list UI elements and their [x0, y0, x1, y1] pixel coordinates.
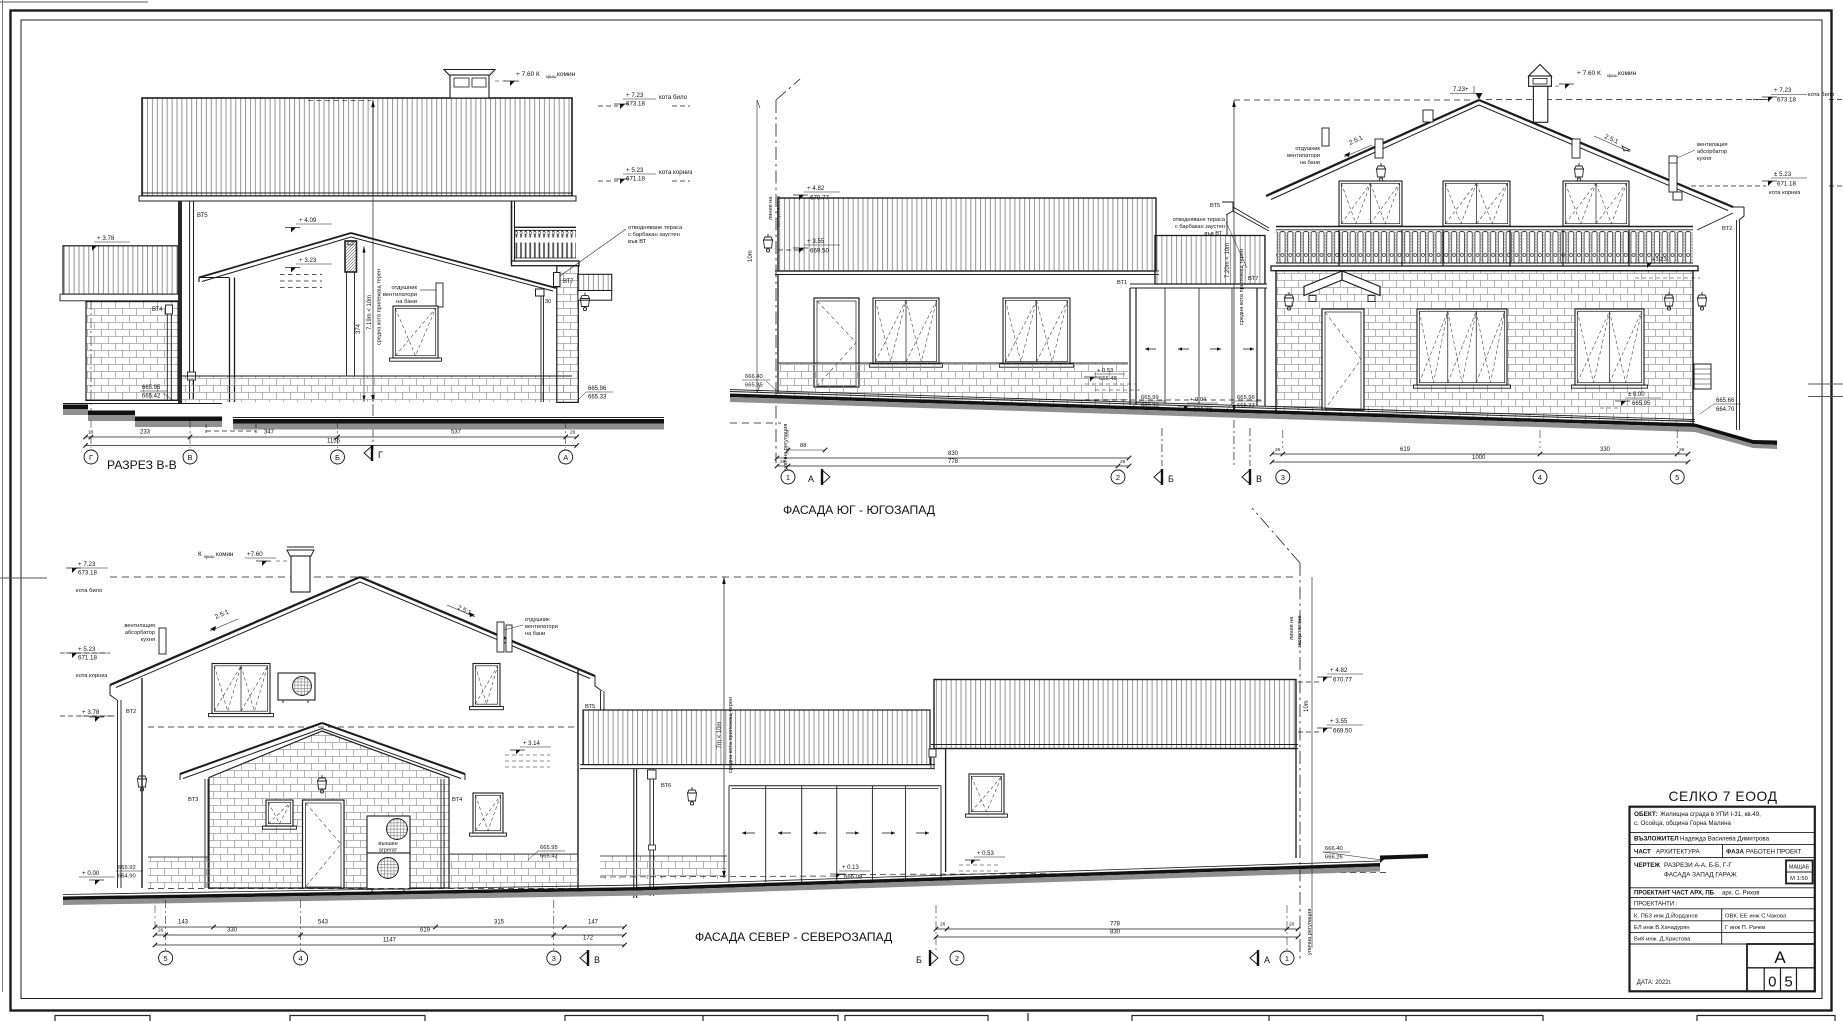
svg-text:комин: комин [557, 71, 576, 78]
svg-text:374: 374 [356, 323, 362, 334]
svg-text:7.20m < 10m: 7.20m < 10m [1225, 243, 1231, 278]
svg-text:кухня: кухня [1697, 156, 1711, 162]
svg-text:26: 26 [940, 922, 946, 928]
svg-text:РАЗРЕЗИ А-А, Б-Б, Г-Г: РАЗРЕЗИ А-А, Б-Б, Г-Г [1664, 862, 1732, 869]
svg-text:вентилатори: вентилатори [1287, 153, 1320, 159]
svg-text:+ 4.82: + 4.82 [807, 185, 825, 192]
svg-text:315: 315 [494, 920, 505, 926]
svg-text:средна кота прилежащ терен: средна кота прилежащ терен [1239, 249, 1245, 325]
svg-text:А: А [1774, 948, 1786, 967]
svg-text:ФАСАДА ЮГ - ЮГОЗАПАД: ФАСАДА ЮГ - ЮГОЗАПАД [783, 503, 936, 517]
svg-text:Г: Г [89, 453, 93, 462]
svg-text:отдушник: отдушник [392, 285, 418, 291]
svg-text:665.33: 665.33 [588, 395, 607, 401]
svg-text:кота било: кота било [1808, 92, 1834, 98]
svg-text:А: А [563, 453, 568, 462]
svg-text:+ 0.13: + 0.13 [842, 865, 860, 871]
svg-text:619: 619 [420, 928, 431, 934]
svg-text:крыш: крыш [204, 554, 215, 559]
svg-text:+7.60: +7.60 [247, 551, 263, 558]
svg-text:А: А [1264, 955, 1270, 965]
svg-text:4: 4 [1538, 473, 1542, 482]
svg-text:1: 1 [786, 473, 790, 482]
svg-text:+ 7.23: + 7.23 [626, 92, 644, 99]
svg-text:ВЪЗЛОЖИТЕЛ: ВЪЗЛОЖИТЕЛ [1634, 836, 1679, 843]
svg-text:5: 5 [1675, 473, 1679, 482]
svg-text:В: В [1256, 474, 1262, 484]
svg-text:26: 26 [1679, 447, 1685, 453]
svg-text:+ 7.60 К: + 7.60 К [1577, 70, 1601, 77]
svg-text:+ 3.55: + 3.55 [1330, 718, 1348, 725]
svg-text:с барбакан заустен: с барбакан заустен [1175, 224, 1225, 230]
svg-text:крыш: крыш [1607, 73, 1618, 78]
svg-text:АРХИТЕКТУРА: АРХИТЕКТУРА [1656, 849, 1700, 856]
svg-text:отводняване тераса: отводняване тераса [1173, 217, 1226, 223]
svg-text:ВТ4: ВТ4 [152, 307, 163, 313]
svg-text:+ 7.23: + 7.23 [1774, 87, 1792, 94]
svg-text:778: 778 [1110, 922, 1121, 928]
svg-text:1155: 1155 [327, 439, 341, 445]
svg-text:ФАСАДА СЕВЕР - СЕВЕРОЗАПАД: ФАСАДА СЕВЕР - СЕВЕРОЗАПАД [695, 930, 893, 944]
svg-text:ФАСАДА ЗАПАД ГАРАЖ: ФАСАДА ЗАПАД ГАРАЖ [1664, 872, 1737, 879]
svg-text:26: 26 [1289, 922, 1295, 928]
svg-text:+ 3.23: + 3.23 [299, 257, 317, 264]
svg-text:1: 1 [1285, 954, 1289, 963]
svg-text:664.70: 664.70 [1716, 407, 1735, 413]
svg-text:К, ПБЗ инж Д.Йорданов: К, ПБЗ инж Д.Йорданов [1634, 912, 1698, 920]
svg-text:537: 537 [451, 430, 462, 436]
svg-text:± 5.23: ± 5.23 [1774, 171, 1792, 178]
svg-text:ВТ6: ВТ6 [661, 783, 671, 789]
svg-text:830: 830 [948, 451, 959, 457]
svg-text:778: 778 [948, 459, 959, 465]
svg-text:+ 3.78: + 3.78 [97, 235, 115, 242]
svg-text:Г: Г [378, 450, 383, 460]
svg-text:30: 30 [545, 299, 551, 305]
svg-text:669.50: 669.50 [1333, 728, 1352, 735]
svg-text:Надежда Василева Димитрова: Надежда Василева Димитрова [1680, 836, 1770, 843]
svg-text:на бани: на бани [525, 631, 545, 637]
svg-text:във ВТ: във ВТ [1204, 231, 1222, 237]
svg-text:671.18: 671.18 [1777, 181, 1796, 188]
svg-text:830: 830 [1110, 930, 1121, 936]
svg-text:+ 0.00: + 0.00 [82, 870, 100, 877]
svg-text:средна кота прилежащ терен: средна кота прилежащ терен [728, 697, 734, 773]
svg-text:средна кота прилежащ терен: средна кота прилежащ терен [377, 269, 383, 345]
svg-text:А: А [808, 474, 814, 484]
svg-text:ВТ3: ВТ3 [188, 797, 198, 803]
svg-text:+ 7.23: + 7.23 [78, 561, 96, 568]
svg-text:172: 172 [583, 936, 594, 942]
svg-text:ВТ7: ВТ7 [563, 279, 574, 285]
svg-text:ВТ5: ВТ5 [1210, 203, 1220, 209]
svg-text:666.48: 666.48 [1099, 376, 1117, 382]
svg-text:619: 619 [1400, 447, 1411, 453]
svg-text:кухня: кухня [141, 637, 155, 643]
svg-text:К: К [198, 551, 202, 558]
svg-text:ФАЗА: ФАЗА [1726, 849, 1744, 856]
svg-text:+ 5.23: + 5.23 [78, 646, 96, 653]
svg-text:ЧЕРТЕЖ: ЧЕРТЕЖ [1634, 862, 1660, 869]
svg-text:ВТ2: ВТ2 [1722, 226, 1732, 232]
svg-text:вентилатори: вентилатори [383, 292, 417, 298]
svg-text:отдушник: отдушник [1295, 146, 1320, 152]
svg-text:5: 5 [1784, 974, 1792, 991]
svg-text:26: 26 [1275, 447, 1281, 453]
svg-text:комин: комин [1618, 70, 1637, 77]
svg-text:669.50: 669.50 [810, 248, 829, 255]
svg-text:10m: 10m [748, 250, 754, 262]
svg-text:във ВТ: във ВТ [628, 239, 647, 245]
svg-text:± 0.00: ± 0.00 [1628, 392, 1645, 398]
svg-text:666.26: 666.26 [1325, 855, 1343, 861]
svg-text:с. Осойца, община Горна Малина: с. Осойца, община Горна Малина [1634, 820, 1731, 827]
svg-text:4: 4 [299, 954, 303, 963]
svg-text:ДАТА: 2022г.: ДАТА: 2022г. [1637, 980, 1672, 986]
svg-text:+ 0.53: + 0.53 [1097, 368, 1113, 374]
svg-text:26: 26 [158, 928, 164, 934]
svg-text:3: 3 [1281, 473, 1285, 482]
svg-text:1147: 1147 [383, 938, 397, 944]
svg-text:СЕЛКО 7 ЕООД: СЕЛКО 7 ЕООД [1668, 789, 1777, 804]
svg-text:ОБЕКТ:: ОБЕКТ: [1634, 811, 1658, 818]
svg-text:ВТ4: ВТ4 [452, 797, 463, 803]
svg-text:с барбакан заустен: с барбакан заустен [628, 232, 680, 238]
svg-text:кота било: кота било [76, 588, 102, 594]
svg-text:Жилищна сграда в УПИ I-31, кв.: Жилищна сграда в УПИ I-31, кв.49, [1660, 811, 1761, 818]
svg-text:арх. С. Рихов: арх. С. Рихов [1722, 891, 1759, 897]
svg-text:+ 3.14: + 3.14 [523, 741, 541, 747]
svg-text:В: В [187, 453, 192, 462]
svg-text:вентилация: вентилация [124, 623, 155, 629]
svg-text:кота корниз: кота корниз [76, 673, 108, 679]
svg-text:+ 4.09: + 4.09 [299, 217, 317, 224]
svg-text:отдушник: отдушник [525, 617, 550, 623]
svg-text:+3.23: +3.23 [1652, 257, 1667, 263]
svg-text:5: 5 [164, 954, 168, 963]
svg-text:застрояване: застрояване [1297, 615, 1303, 648]
svg-text:кота било: кота било [659, 94, 688, 101]
svg-text:ВиК инж. Д.Христова: ВиК инж. Д.Христова [1634, 937, 1691, 943]
svg-text:665.85: 665.85 [745, 383, 763, 389]
svg-text:РАЗРЕЗ В-В: РАЗРЕЗ В-В [107, 458, 177, 472]
svg-text:671.18: 671.18 [78, 655, 97, 662]
svg-text:26: 26 [570, 430, 576, 436]
svg-text:улична регулация: улична регулация [1307, 909, 1313, 955]
svg-text:ВТ5: ВТ5 [585, 704, 595, 710]
svg-text:143: 143 [178, 920, 189, 926]
svg-text:665.96: 665.96 [588, 386, 607, 392]
svg-text:3: 3 [552, 954, 556, 963]
svg-text:330: 330 [227, 928, 238, 934]
svg-text:външен: външен [378, 841, 397, 847]
svg-text:ПРОЕКТАНТ ЧАСТ АРХ, ПБ: ПРОЕКТАНТ ЧАСТ АРХ, ПБ [1634, 891, 1715, 897]
svg-text:7m < 10m: 7m < 10m [717, 722, 723, 749]
svg-text:0: 0 [1768, 974, 1776, 991]
svg-text:на бани: на бани [1300, 160, 1320, 166]
svg-text:Б: Б [916, 955, 922, 965]
svg-text:543: 543 [318, 920, 329, 926]
svg-text:ЕЛ инж В.Хачадурян: ЕЛ инж В.Хачадурян [1634, 925, 1690, 931]
svg-text:ОВК, ЕЕ инж С.Чакова: ОВК, ЕЕ инж С.Чакова [1725, 914, 1787, 920]
svg-text:на бани: на бани [396, 299, 417, 305]
svg-text:отводняване тераса: отводняване тераса [628, 225, 683, 231]
svg-text:673.18: 673.18 [1777, 97, 1796, 104]
svg-text:линия на: линия на [768, 196, 774, 220]
svg-text:664.90: 664.90 [118, 874, 136, 880]
svg-text:+ 7.60 К: + 7.60 К [516, 71, 540, 78]
svg-text:670.77: 670.77 [1333, 677, 1352, 684]
svg-text:7.23+: 7.23+ [1453, 86, 1469, 93]
svg-text:347: 347 [264, 430, 275, 436]
svg-text:кота корниз: кота корниз [1769, 190, 1801, 196]
svg-text:88: 88 [800, 443, 806, 449]
svg-text:ВТ2: ВТ2 [126, 709, 136, 715]
svg-text:665.66: 665.66 [1716, 398, 1735, 404]
svg-text:666.40: 666.40 [1325, 846, 1343, 852]
svg-text:ВТ5: ВТ5 [197, 213, 208, 219]
svg-text:665.95: 665.95 [142, 385, 161, 391]
svg-text:233: 233 [140, 430, 151, 436]
svg-text:665.42: 665.42 [540, 854, 558, 860]
svg-text:+ 3.78: + 3.78 [82, 709, 100, 716]
svg-text:665.92: 665.92 [118, 865, 136, 871]
svg-text:26: 26 [780, 459, 786, 465]
svg-text:2: 2 [1116, 473, 1120, 482]
svg-text:+ 0.53: + 0.53 [977, 851, 995, 857]
svg-text:Б: Б [335, 453, 340, 462]
svg-text:В: В [594, 955, 600, 965]
svg-text:+ 4.82: + 4.82 [1330, 667, 1348, 674]
svg-text:вентилация: вентилация [1697, 142, 1728, 148]
svg-text:кота корниз: кота корниз [659, 169, 693, 176]
svg-text:673.18: 673.18 [78, 570, 97, 577]
svg-text:линия на: линия на [1289, 616, 1295, 640]
svg-text:665.95: 665.95 [1632, 401, 1651, 407]
svg-text:665.95: 665.95 [540, 845, 558, 851]
svg-text:РАБОТЕН ПРОЕКТ: РАБОТЕН ПРОЕКТ [1746, 849, 1802, 856]
svg-text:крыш: крыш [546, 74, 557, 79]
svg-text:ПРОЕКТАНТИ :: ПРОЕКТАНТИ : [1634, 902, 1678, 908]
svg-text:2: 2 [955, 954, 959, 963]
svg-text:665.42: 665.42 [142, 394, 161, 400]
svg-text:1000: 1000 [1472, 455, 1486, 461]
svg-text:абсорбатор: абсорбатор [125, 630, 155, 636]
svg-text:ВТ7: ВТ7 [1248, 276, 1258, 282]
svg-text:вентилатори: вентилатори [525, 624, 558, 630]
svg-text:330: 330 [1600, 447, 1611, 453]
svg-text:+ 3.55: + 3.55 [807, 238, 825, 245]
svg-text:М 1:50: М 1:50 [1790, 876, 1808, 882]
svg-text:Б: Б [1168, 474, 1174, 484]
svg-text:147: 147 [588, 920, 599, 926]
svg-text:7.19m < 10m: 7.19m < 10m [367, 295, 373, 330]
svg-text:666.40: 666.40 [745, 374, 763, 380]
svg-text:Г инж П. Рачев: Г инж П. Рачев [1725, 925, 1765, 931]
svg-text:670.77: 670.77 [810, 195, 829, 202]
svg-text:ЧАСТ: ЧАСТ [1634, 849, 1651, 856]
svg-text:МАЩАБ: МАЩАБ [1789, 865, 1810, 871]
svg-text:абсорбатор: абсорбатор [1697, 149, 1727, 155]
svg-text:26: 26 [1120, 459, 1126, 465]
svg-text:комин: комин [216, 551, 233, 558]
svg-text:10m: 10m [1304, 700, 1310, 712]
svg-text:+ 5.23: + 5.23 [626, 167, 644, 174]
svg-text:ВТ1: ВТ1 [1117, 280, 1127, 286]
